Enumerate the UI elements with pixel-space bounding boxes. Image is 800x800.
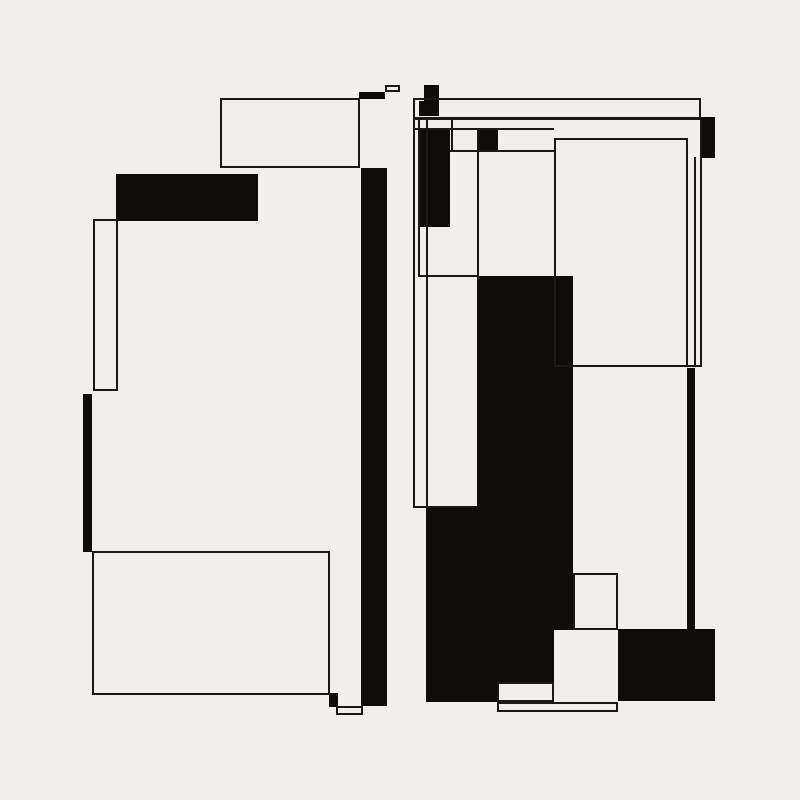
artwork-canvas xyxy=(0,0,800,800)
left-top-black-bar xyxy=(359,92,385,99)
upper-grid-line-a xyxy=(413,128,554,130)
bottom-white-strip xyxy=(497,702,618,712)
upper-grid-line-b xyxy=(450,150,554,152)
left-bottom-outline-rect xyxy=(92,551,330,695)
left-main-vertical-bar xyxy=(361,168,387,706)
cell-vertical-line xyxy=(451,118,453,152)
left-top-outline-rect xyxy=(220,98,360,168)
left-bottom-corner-square xyxy=(329,693,338,707)
right-large-outline-rect xyxy=(554,138,688,367)
mass-corner-vertical-line xyxy=(477,128,479,276)
embedded-white-square xyxy=(573,573,618,630)
right-tall-black-rect xyxy=(419,129,450,227)
right-vertical-line-outer xyxy=(700,118,702,367)
left-narrow-outline-rect xyxy=(93,219,118,391)
right-cell-black-rect xyxy=(477,129,498,151)
left-vertical-line-3 xyxy=(426,118,428,508)
left-thick-edge-bar xyxy=(83,394,92,552)
left-bottom-small-outline xyxy=(336,706,363,715)
left-tiny-outline-rect xyxy=(385,85,400,92)
left-black-header-rect xyxy=(116,174,258,221)
band-inner-line xyxy=(413,117,701,119)
right-thick-vertical-bar xyxy=(687,368,695,630)
left-vertical-line-2 xyxy=(418,118,420,276)
lower-connector-line xyxy=(413,506,478,508)
left-vertical-line-1 xyxy=(413,118,415,508)
bottom-right-black-rect xyxy=(618,629,715,701)
center-black-mass-middle xyxy=(426,508,573,630)
right-vertical-line-inner xyxy=(694,157,696,367)
bottom-notch-white-rect xyxy=(497,682,554,702)
right-edge-black-rect xyxy=(700,117,715,158)
